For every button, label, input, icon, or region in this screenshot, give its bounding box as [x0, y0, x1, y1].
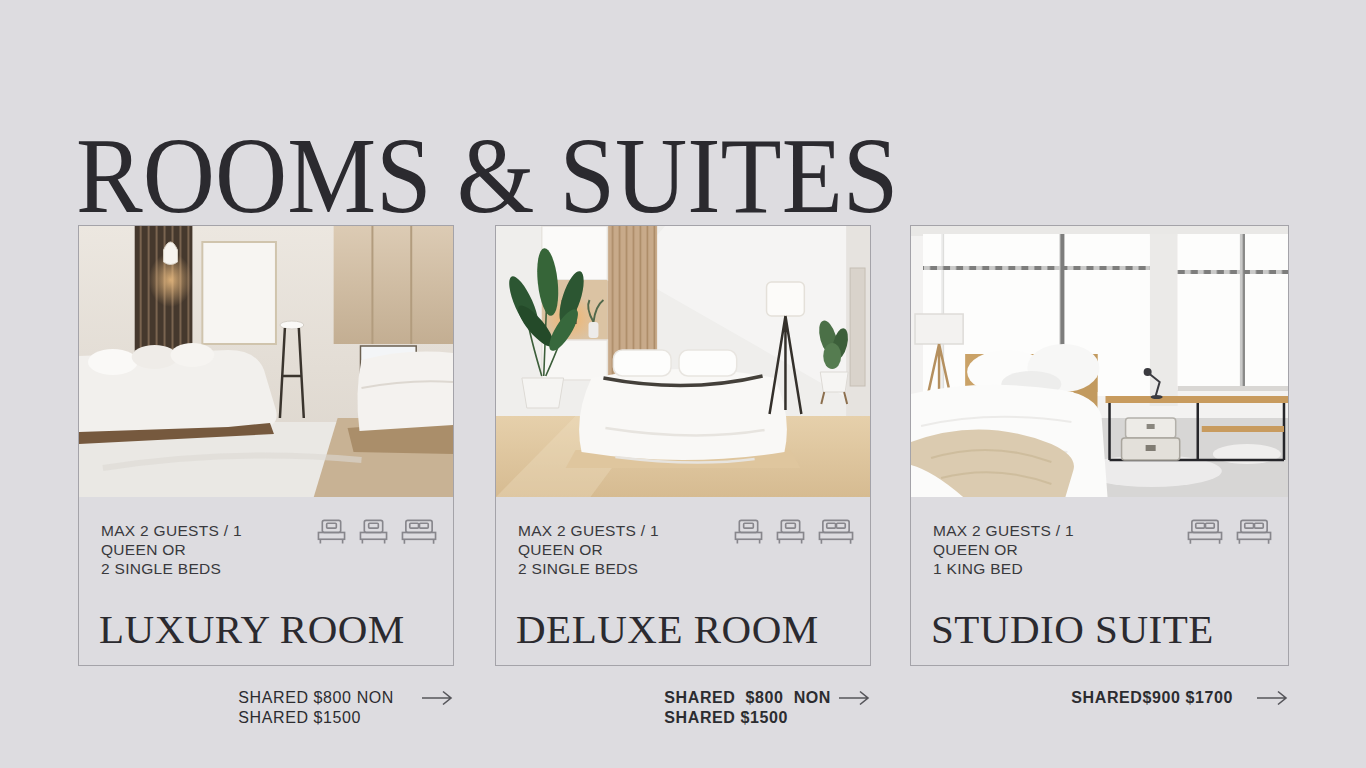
- room-info: MAX 2 GUESTS / 1 QUEEN OR 1 KING BED STU…: [911, 497, 1288, 665]
- bed-icons: [1187, 519, 1272, 545]
- occupancy-text: MAX 2 GUESTS / 1 QUEEN OR 2 SINGLE BEDS: [101, 521, 242, 578]
- bed-icons: [734, 519, 854, 545]
- bed-icons: [317, 519, 437, 545]
- room-card-deluxe[interactable]: MAX 2 GUESTS / 1 QUEEN OR 2 SINGLE BEDS: [495, 225, 871, 666]
- rooms-and-suites-section: ROOMS & SUITES: [0, 0, 1366, 768]
- double-bed-icon: [1236, 519, 1272, 545]
- occupancy-text: MAX 2 GUESTS / 1 QUEEN OR 2 SINGLE BEDS: [518, 521, 659, 578]
- price-row-deluxe: SHARED $800 NON SHARED $1500: [664, 688, 871, 727]
- price-row-studio: SHARED$900 $1700: [1071, 688, 1289, 708]
- room-info: MAX 2 GUESTS / 1 QUEEN OR 2 SINGLE BEDS: [496, 497, 870, 665]
- double-bed-icon: [401, 519, 437, 545]
- single-bed-icon: [776, 519, 805, 545]
- arrow-right-icon[interactable]: [1255, 689, 1289, 707]
- room-info: MAX 2 GUESTS / 1 QUEEN OR 2 SINGLE BEDS: [79, 497, 453, 665]
- room-name: STUDIO SUITE: [931, 609, 1214, 650]
- studio-suite-illustration: [911, 226, 1288, 497]
- room-card-studio[interactable]: MAX 2 GUESTS / 1 QUEEN OR 1 KING BED STU…: [910, 225, 1289, 666]
- double-bed-icon: [1187, 519, 1223, 545]
- price-text: SHARED $800 NON SHARED $1500: [664, 688, 831, 727]
- luxury-room-illustration: [79, 226, 453, 497]
- room-name: DELUXE ROOM: [516, 609, 819, 650]
- luxury-room-photo: [79, 226, 453, 497]
- page-title: ROOMS & SUITES: [76, 122, 898, 230]
- single-bed-icon: [359, 519, 388, 545]
- double-bed-icon: [818, 519, 854, 545]
- room-name: LUXURY ROOM: [99, 609, 405, 650]
- single-bed-icon: [317, 519, 346, 545]
- arrow-right-icon[interactable]: [420, 689, 454, 707]
- single-bed-icon: [734, 519, 763, 545]
- studio-suite-photo: [911, 226, 1288, 497]
- deluxe-room-illustration: [496, 226, 870, 497]
- arrow-right-icon[interactable]: [837, 689, 871, 707]
- room-card-luxury[interactable]: MAX 2 GUESTS / 1 QUEEN OR 2 SINGLE BEDS: [78, 225, 454, 666]
- price-row-luxury: SHARED $800 NON SHARED $1500: [238, 688, 454, 727]
- price-text: SHARED $800 NON SHARED $1500: [238, 688, 394, 727]
- price-text: SHARED$900 $1700: [1071, 688, 1233, 708]
- deluxe-room-photo: [496, 226, 870, 497]
- occupancy-text: MAX 2 GUESTS / 1 QUEEN OR 1 KING BED: [933, 521, 1074, 578]
